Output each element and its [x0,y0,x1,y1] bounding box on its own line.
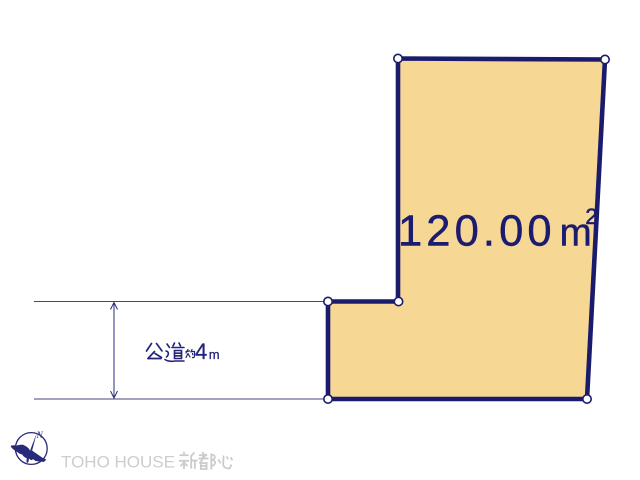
svg-text:120.00m2: 120.00m2 [398,204,602,256]
svg-text:4m: 4m [195,339,220,364]
svg-text:N: N [36,431,44,441]
svg-text:TOHO HOUSE: TOHO HOUSE [61,453,175,472]
